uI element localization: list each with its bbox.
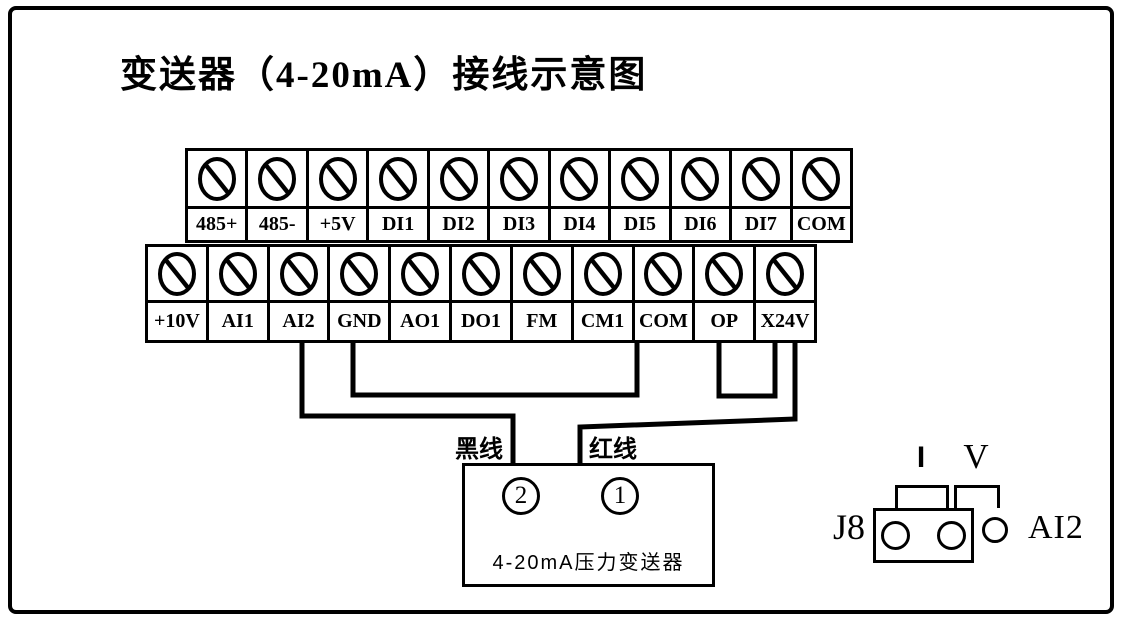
j8-signal-label: AI2 [1028, 509, 1084, 547]
screw-terminal-icon [430, 151, 487, 209]
transmitter-box: 2 1 4-20mA压力变送器 [462, 463, 715, 587]
terminal-cell-DI2: DI2 [427, 151, 487, 240]
terminal-cell-DI6: DI6 [669, 151, 729, 240]
terminal-row-bottom: +10VAI1AI2GNDAO1DO1FMCM1COMOPX24V [145, 244, 817, 343]
terminal-cell-OP: OP [692, 247, 753, 340]
diagram-title: 变送器（4-20mA）接线示意图 [120, 44, 647, 98]
j8-pin-1-icon [881, 521, 910, 550]
screw-terminal-icon [756, 247, 814, 303]
terminal-cell-DI5: DI5 [608, 151, 668, 240]
terminal-cell-AO1: AO1 [388, 247, 449, 340]
transmitter-terminal-2: 2 [502, 477, 540, 515]
red-wire-label: 红线 [589, 429, 637, 464]
screw-terminal-icon [270, 247, 328, 303]
terminal-cell-AI1: AI1 [206, 247, 267, 340]
j8-voltage-mode-bracket [954, 485, 1000, 508]
screw-terminal-icon [574, 247, 632, 303]
screw-terminal-icon [369, 151, 426, 209]
screw-terminal-icon [732, 151, 789, 209]
screw-terminal-icon [490, 151, 547, 209]
screw-terminal-icon [611, 151, 668, 209]
terminal-cell-485+: 485+ [188, 151, 245, 240]
screw-terminal-icon [635, 247, 693, 303]
screw-terminal-icon [309, 151, 366, 209]
terminal-cell-DI4: DI4 [548, 151, 608, 240]
wiring-diagram: 变送器（4-20mA）接线示意图 485+485-+5VDI1DI2DI3DI4… [0, 0, 1125, 624]
j8-voltage-mode-label: V [958, 437, 994, 477]
screw-terminal-icon [391, 247, 449, 303]
terminal-label: DI3 [490, 209, 547, 240]
terminal-label: GND [330, 303, 388, 340]
terminal-cell-DO1: DO1 [449, 247, 510, 340]
terminal-cell-CM1: CM1 [571, 247, 632, 340]
terminal-label: FM [513, 303, 571, 340]
terminal-label: 485- [248, 209, 305, 240]
screw-terminal-icon [551, 151, 608, 209]
terminal-cell-FM: FM [510, 247, 571, 340]
terminal-label: DI6 [672, 209, 729, 240]
terminal-label: DO1 [452, 303, 510, 340]
terminal-label: AO1 [391, 303, 449, 340]
screw-terminal-icon [695, 247, 753, 303]
terminal-label: DI5 [611, 209, 668, 240]
terminal-cell-+10V: +10V [148, 247, 206, 340]
terminal-cell-COM: COM [790, 151, 850, 240]
terminal-label: +10V [148, 303, 206, 340]
terminal-cell-485-: 485- [245, 151, 305, 240]
terminal-label: DI1 [369, 209, 426, 240]
terminal-cell-DI3: DI3 [487, 151, 547, 240]
terminal-2-number: 2 [515, 482, 528, 510]
j8-current-mode-label: I [912, 441, 930, 475]
terminal-cell-DI1: DI1 [366, 151, 426, 240]
terminal-label: DI7 [732, 209, 789, 240]
screw-terminal-icon [209, 247, 267, 303]
transmitter-terminal-1: 1 [601, 477, 639, 515]
terminal-label: +5V [309, 209, 366, 240]
terminal-label: X24V [756, 303, 814, 340]
screw-terminal-icon [672, 151, 729, 209]
screw-terminal-icon [793, 151, 850, 209]
terminal-cell-GND: GND [327, 247, 388, 340]
terminal-label: DI4 [551, 209, 608, 240]
terminal-cell-DI7: DI7 [729, 151, 789, 240]
screw-terminal-icon [248, 151, 305, 209]
j8-current-mode-bracket [895, 485, 949, 508]
terminal-label: OP [695, 303, 753, 340]
terminal-cell-X24V: X24V [753, 247, 814, 340]
screw-terminal-icon [188, 151, 245, 209]
terminal-label: DI2 [430, 209, 487, 240]
terminal-label: COM [793, 209, 850, 240]
terminal-row-top: 485+485-+5VDI1DI2DI3DI4DI5DI6DI7COM [185, 148, 853, 243]
j8-jumper-block [873, 508, 974, 563]
j8-pin-3-icon [982, 517, 1008, 543]
terminal-label: CM1 [574, 303, 632, 340]
terminal-cell-AI2: AI2 [267, 247, 328, 340]
j8-connector-label: J8 [813, 506, 865, 548]
transmitter-label: 4-20mA压力变送器 [465, 546, 712, 575]
terminal-label: COM [635, 303, 693, 340]
terminal-label: AI2 [270, 303, 328, 340]
black-wire-label: 黑线 [455, 429, 503, 464]
terminal-cell-COM: COM [632, 247, 693, 340]
terminal-label: 485+ [188, 209, 245, 240]
screw-terminal-icon [513, 247, 571, 303]
terminal-cell-+5V: +5V [306, 151, 366, 240]
screw-terminal-icon [330, 247, 388, 303]
j8-pin-2-icon [937, 521, 966, 550]
terminal-1-number: 1 [614, 482, 627, 510]
screw-terminal-icon [148, 247, 206, 303]
terminal-label: AI1 [209, 303, 267, 340]
screw-terminal-icon [452, 247, 510, 303]
